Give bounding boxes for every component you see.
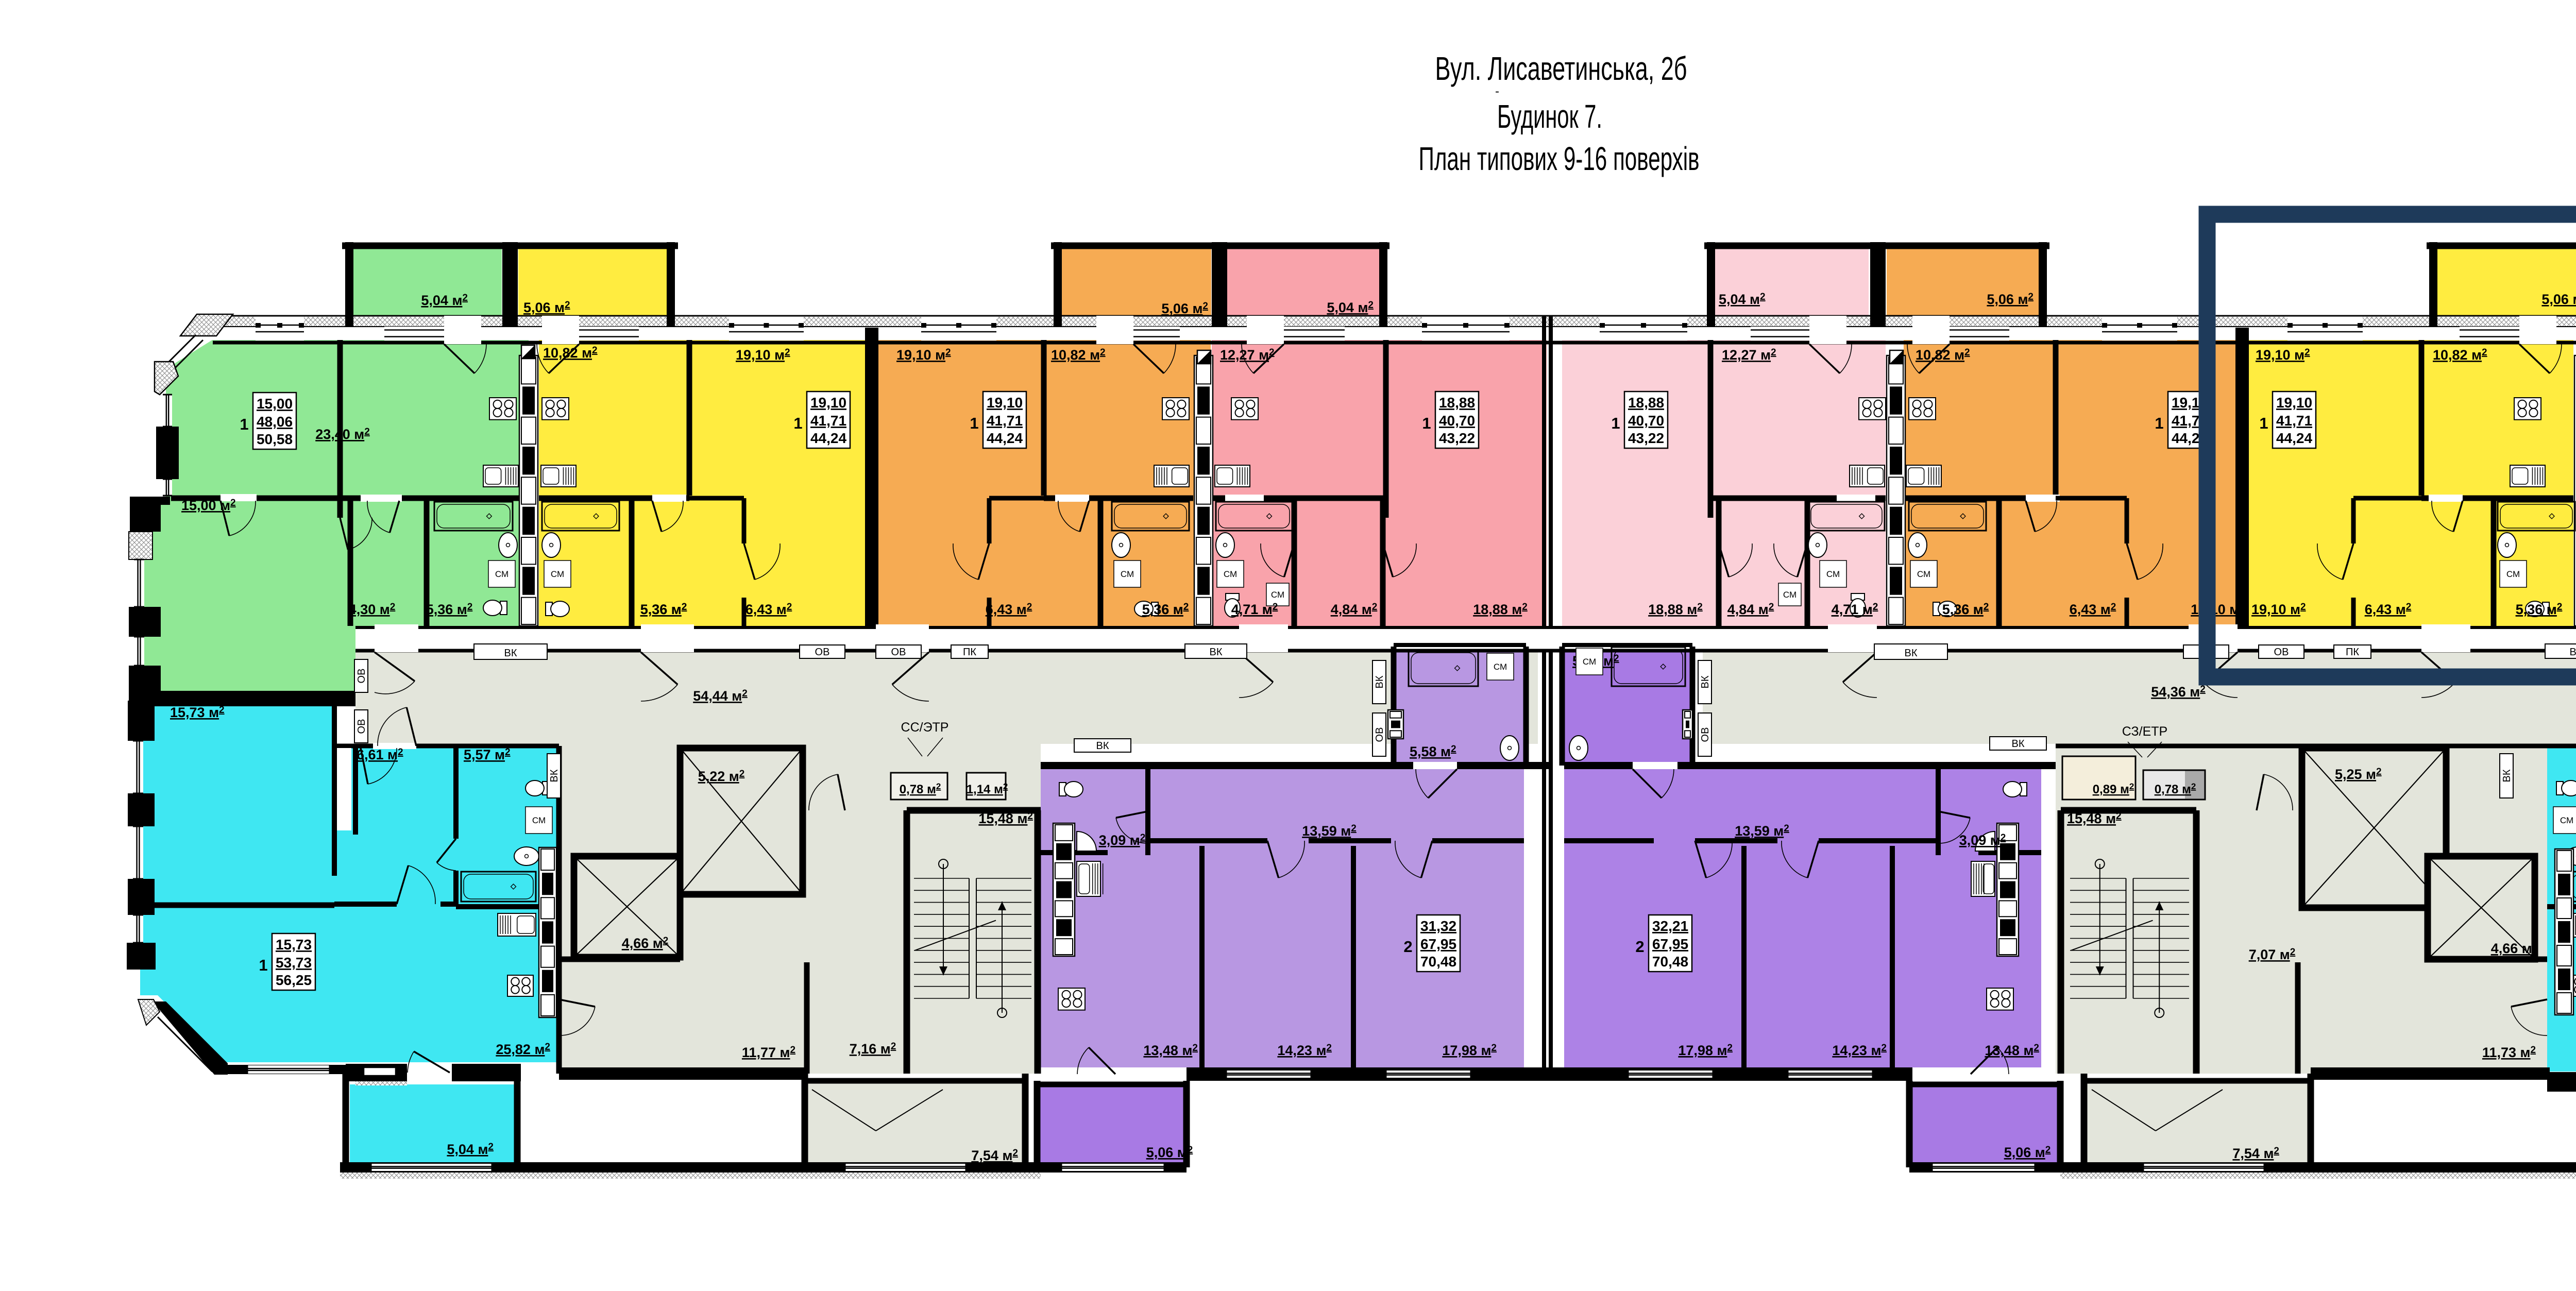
svg-text:5,04 м2: 5,04 м2 bbox=[447, 1142, 494, 1157]
svg-text:5,06 м2: 5,06 м2 bbox=[1987, 292, 2033, 307]
svg-text:ОВ: ОВ bbox=[815, 647, 830, 658]
svg-text:5,04 м2: 5,04 м2 bbox=[1327, 300, 1374, 315]
svg-text:СМ: СМ bbox=[1917, 569, 1930, 579]
svg-text:7,16 м2: 7,16 м2 bbox=[850, 1041, 896, 1057]
svg-text:СМ: СМ bbox=[1826, 569, 1840, 579]
svg-text:5,04 м2: 5,04 м2 bbox=[421, 293, 468, 308]
svg-text:25,82 м2: 25,82 м2 bbox=[496, 1042, 550, 1057]
svg-text:1,14 м2: 1,14 м2 bbox=[967, 782, 1008, 796]
svg-text:17,98 м2: 17,98 м2 bbox=[1442, 1043, 1497, 1058]
svg-text:0,78 м2: 0,78 м2 bbox=[900, 782, 941, 796]
svg-text:13,59 м2: 13,59 м2 bbox=[1735, 823, 1789, 839]
svg-text:СМ: СМ bbox=[1121, 569, 1134, 579]
svg-text:15,48 м2: 15,48 м2 bbox=[2067, 811, 2122, 826]
svg-text:СМ: СМ bbox=[1271, 590, 1284, 600]
svg-text:10,82 м2: 10,82 м2 bbox=[1051, 347, 1106, 363]
svg-text:СМ: СМ bbox=[2560, 816, 2573, 825]
svg-text:6,43 м2: 6,43 м2 bbox=[745, 602, 792, 617]
svg-text:14,23 м2: 14,23 м2 bbox=[1832, 1043, 1887, 1058]
svg-text:1: 1 bbox=[2155, 414, 2163, 432]
svg-text:ВК: ВК bbox=[2501, 769, 2513, 782]
svg-text:18,88 м2: 18,88 м2 bbox=[1648, 602, 1703, 617]
svg-text:ВК: ВК bbox=[1210, 647, 1223, 658]
svg-text:1: 1 bbox=[2259, 414, 2268, 432]
svg-text:СМ: СМ bbox=[551, 569, 564, 579]
svg-text:17,98 м2: 17,98 м2 bbox=[1678, 1043, 1733, 1058]
svg-text:19,10 м2: 19,10 м2 bbox=[896, 347, 951, 363]
svg-text:ПК: ПК bbox=[963, 647, 976, 658]
svg-text:1: 1 bbox=[1611, 414, 1620, 432]
svg-text:5,22 м2: 5,22 м2 bbox=[698, 769, 745, 784]
svg-text:4,30 м2: 4,30 м2 bbox=[349, 602, 396, 617]
svg-text:18,88: 18,88 bbox=[1628, 395, 1664, 411]
svg-text:СМ: СМ bbox=[495, 569, 509, 579]
svg-text:ВК: ВК bbox=[504, 648, 517, 659]
svg-text:Будинок 7.: Будинок 7. bbox=[1497, 98, 1602, 135]
svg-text:19,10 м2: 19,10 м2 bbox=[736, 347, 790, 363]
svg-text:5,06 м2: 5,06 м2 bbox=[523, 300, 570, 315]
svg-text:11,77 м2: 11,77 м2 bbox=[742, 1045, 795, 1060]
svg-text:41,71: 41,71 bbox=[2276, 413, 2312, 429]
svg-text:СМ: СМ bbox=[532, 816, 546, 825]
svg-text:ВК: ВК bbox=[1905, 648, 1918, 659]
svg-text:СМ: СМ bbox=[1583, 657, 1596, 667]
svg-text:53,73: 53,73 bbox=[276, 955, 312, 971]
svg-text:5,25 м2: 5,25 м2 bbox=[2335, 767, 2382, 782]
svg-text:41,71: 41,71 bbox=[987, 413, 1023, 429]
svg-text:СМ: СМ bbox=[2506, 569, 2520, 579]
svg-text:7,54 м2: 7,54 м2 bbox=[2232, 1146, 2279, 1161]
svg-text:ОВ: ОВ bbox=[1374, 727, 1385, 742]
svg-text:13,48 м2: 13,48 м2 bbox=[1143, 1043, 1198, 1058]
svg-text:3,09 м2: 3,09 м2 bbox=[1959, 833, 2006, 848]
svg-text:План типових 9-16 поверхів: План типових 9-16 поверхів bbox=[1419, 140, 1700, 177]
svg-text:32,21: 32,21 bbox=[1652, 918, 1688, 934]
svg-text:40,70: 40,70 bbox=[1628, 413, 1664, 429]
svg-text:18,88: 18,88 bbox=[1439, 395, 1475, 411]
svg-text:1: 1 bbox=[1422, 414, 1431, 432]
svg-text:ВК: ВК bbox=[1700, 675, 1711, 688]
svg-text:СЗ/ЕТР: СЗ/ЕТР bbox=[2122, 724, 2167, 739]
svg-text:5,36 м2: 5,36 м2 bbox=[640, 602, 687, 617]
svg-text:44,24: 44,24 bbox=[987, 430, 1023, 446]
svg-text:1: 1 bbox=[240, 415, 248, 433]
svg-text:5,36 м2: 5,36 м2 bbox=[1142, 602, 1189, 617]
svg-text:4,84 м2: 4,84 м2 bbox=[1727, 602, 1774, 617]
svg-text:5,04 м2: 5,04 м2 bbox=[1719, 292, 1766, 307]
svg-text:Вул. Лисаветинська, 2б: Вул. Лисаветинська, 2б bbox=[1435, 50, 1687, 87]
svg-text:5,06 м2: 5,06 м2 bbox=[1161, 301, 1208, 316]
svg-text:43,22: 43,22 bbox=[1628, 430, 1664, 446]
svg-text:СМ: СМ bbox=[1224, 569, 1237, 579]
svg-text:50,58: 50,58 bbox=[257, 431, 293, 447]
svg-text:18,88 м2: 18,88 м2 bbox=[1473, 602, 1528, 617]
svg-text:4,66 м2: 4,66 м2 bbox=[2491, 941, 2538, 956]
svg-text:13,59 м2: 13,59 м2 bbox=[1302, 823, 1357, 839]
svg-text:15,00 м2: 15,00 м2 bbox=[181, 498, 236, 513]
svg-text:ВК: ВК bbox=[2012, 738, 2025, 750]
svg-text:11,73 м2: 11,73 м2 bbox=[2482, 1045, 2536, 1060]
svg-text:5,36 м2: 5,36 м2 bbox=[1942, 602, 1989, 617]
svg-text:5,58 м2: 5,58 м2 bbox=[1410, 744, 1456, 759]
svg-text:1: 1 bbox=[259, 956, 267, 974]
svg-text:1: 1 bbox=[970, 414, 978, 432]
svg-text:5,36 м2: 5,36 м2 bbox=[426, 602, 473, 617]
svg-text:4,71 м2: 4,71 м2 bbox=[1832, 602, 1878, 617]
svg-text:40,70: 40,70 bbox=[1439, 413, 1475, 429]
svg-text:13,48 м2: 13,48 м2 bbox=[1985, 1043, 2039, 1058]
svg-text:7,07 м2: 7,07 м2 bbox=[2249, 947, 2296, 962]
svg-text:ПК: ПК bbox=[2346, 647, 2359, 658]
svg-text:44,24: 44,24 bbox=[2276, 430, 2312, 446]
svg-text:ОВ: ОВ bbox=[356, 719, 367, 734]
svg-text:67,95: 67,95 bbox=[1420, 936, 1456, 952]
svg-text:ОВ: ОВ bbox=[891, 647, 906, 658]
svg-text:6,43 м2: 6,43 м2 bbox=[2070, 602, 2116, 617]
svg-text:ВК: ВК bbox=[549, 769, 560, 782]
svg-text:67,95: 67,95 bbox=[1652, 936, 1688, 952]
svg-text:43,22: 43,22 bbox=[1439, 430, 1475, 446]
svg-text:ВК: ВК bbox=[2570, 647, 2576, 658]
svg-text:ВК: ВК bbox=[1096, 740, 1109, 752]
svg-text:15,73: 15,73 bbox=[276, 937, 312, 953]
svg-text:54,44 м2: 54,44 м2 bbox=[693, 688, 748, 704]
svg-text:5,36 м2: 5,36 м2 bbox=[2516, 602, 2563, 617]
svg-text:5,06 м2: 5,06 м2 bbox=[1146, 1145, 1193, 1160]
svg-text:ОВ: ОВ bbox=[2274, 647, 2289, 658]
svg-text:48,06: 48,06 bbox=[257, 414, 293, 430]
svg-text:19,10 м2: 19,10 м2 bbox=[2251, 602, 2306, 617]
svg-text:70,48: 70,48 bbox=[1652, 954, 1688, 970]
svg-text:14,23 м2: 14,23 м2 bbox=[1277, 1043, 1332, 1058]
svg-text:4,71 м2: 4,71 м2 bbox=[1231, 602, 1278, 617]
svg-text:СС/ЭТР: СС/ЭТР bbox=[901, 720, 949, 735]
svg-text:5,06 м2: 5,06 м2 bbox=[2541, 292, 2576, 307]
svg-text:19,10: 19,10 bbox=[810, 395, 846, 411]
svg-text:70,48: 70,48 bbox=[1420, 954, 1456, 970]
svg-text:0,89 м2: 0,89 м2 bbox=[2093, 782, 2134, 796]
svg-text:ВК: ВК bbox=[1374, 675, 1385, 688]
svg-text:56,25: 56,25 bbox=[276, 972, 312, 988]
svg-text:5,57 м2: 5,57 м2 bbox=[464, 747, 511, 762]
svg-text:31,32: 31,32 bbox=[1420, 918, 1456, 934]
svg-text:15,48 м2: 15,48 м2 bbox=[978, 811, 1033, 826]
svg-text:23,40 м2: 23,40 м2 bbox=[315, 427, 370, 442]
svg-text:19,10 м2: 19,10 м2 bbox=[2256, 347, 2310, 363]
svg-text:10,82 м2: 10,82 м2 bbox=[2433, 347, 2487, 363]
svg-text:3,09 м2: 3,09 м2 bbox=[1099, 833, 1146, 848]
svg-text:15,73 м2: 15,73 м2 bbox=[170, 705, 225, 720]
svg-text:41,71: 41,71 bbox=[810, 413, 846, 429]
svg-text:44,24: 44,24 bbox=[810, 430, 846, 446]
svg-text:5,06 м2: 5,06 м2 bbox=[2004, 1145, 2051, 1160]
svg-text:7,54 м2: 7,54 м2 bbox=[971, 1148, 1018, 1163]
svg-text:4,66 м2: 4,66 м2 bbox=[622, 936, 669, 951]
svg-text:15,00: 15,00 bbox=[257, 396, 293, 412]
svg-text:1: 1 bbox=[793, 414, 802, 432]
svg-text:СМ: СМ bbox=[1494, 662, 1507, 672]
svg-text:-: - bbox=[1495, 84, 1499, 98]
svg-text:4,84 м2: 4,84 м2 bbox=[1331, 602, 1378, 617]
svg-text:19,10: 19,10 bbox=[987, 395, 1023, 411]
svg-text:0,78 м2: 0,78 м2 bbox=[2155, 782, 2196, 796]
svg-text:19,10: 19,10 bbox=[2276, 395, 2312, 411]
svg-text:ОВ: ОВ bbox=[1700, 727, 1711, 742]
svg-text:6,43 м2: 6,43 м2 bbox=[2365, 602, 2412, 617]
svg-text:2: 2 bbox=[1635, 938, 1644, 956]
svg-text:ОВ: ОВ bbox=[356, 669, 367, 684]
svg-text:12,27 м2: 12,27 м2 bbox=[1722, 347, 1776, 363]
svg-text:2: 2 bbox=[1403, 938, 1412, 956]
svg-text:6,43 м2: 6,43 м2 bbox=[986, 602, 1032, 617]
svg-text:СМ: СМ bbox=[1783, 590, 1797, 600]
svg-text:54,36 м2: 54,36 м2 bbox=[2151, 684, 2206, 700]
